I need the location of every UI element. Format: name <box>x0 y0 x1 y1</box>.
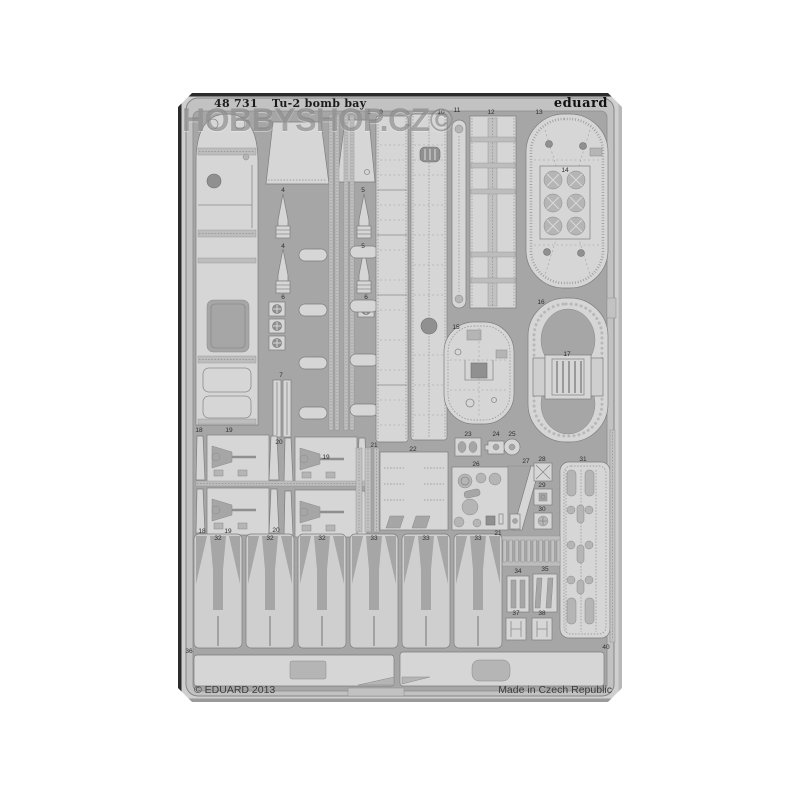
part-number-label: 32 <box>214 535 222 542</box>
part-number-label: 13 <box>535 109 543 116</box>
part-11-strip <box>452 120 466 308</box>
part-number-label: 40 <box>602 644 610 651</box>
part-number-label: 18 <box>198 528 206 535</box>
part-16-ring <box>528 298 608 442</box>
part-number-label: 35 <box>541 566 549 573</box>
part-number-label: 21 <box>370 442 378 449</box>
part-number-label: 6 <box>364 294 368 301</box>
part-bomb-bay-doors <box>376 114 447 442</box>
part-number-label: 11 <box>454 107 461 114</box>
part-number-label: 38 <box>538 610 546 617</box>
part-13-oval-panel <box>526 114 608 288</box>
part-number-label: 17 <box>563 351 571 358</box>
part-number-label: 32 <box>318 535 326 542</box>
part-number-label: 21 <box>494 530 502 537</box>
part-31-panel <box>560 462 610 638</box>
part-number-label: 7 <box>279 372 283 379</box>
parts-28-29-30 <box>534 463 552 529</box>
part-17-grille <box>533 355 603 399</box>
pe-fret-sheet: 1910111213144545667151617181920192122232… <box>178 93 622 702</box>
part-26-plate <box>452 467 508 530</box>
part-number-label: 23 <box>464 431 472 438</box>
part-number-label: 30 <box>538 506 546 513</box>
part-number-label: 19 <box>322 454 330 461</box>
product-photo: 1910111213144545667151617181920192122232… <box>178 93 622 702</box>
part-number-label: 12 <box>487 109 495 116</box>
part-bomb-bay-sidewall <box>196 114 258 425</box>
page: 1910111213144545667151617181920192122232… <box>0 0 800 800</box>
part-number-label: 27 <box>522 458 530 465</box>
part-number-label: 32 <box>266 535 274 542</box>
origin-text: Made in Czech Republic <box>498 684 612 696</box>
part-number-label: 16 <box>537 299 545 306</box>
part-number-label: 4 <box>281 243 285 250</box>
part-number-label: 37 <box>512 610 520 617</box>
part-number-label: 33 <box>474 535 482 542</box>
part-number-label: 34 <box>514 568 522 575</box>
part-number-label: 24 <box>492 431 500 438</box>
part-number-label: 19 <box>224 528 232 535</box>
eduard-logo: eduard <box>554 96 608 111</box>
part-number-label: 4 <box>281 187 285 194</box>
part-number-label: 28 <box>538 456 546 463</box>
part-number-label: 6 <box>281 294 285 301</box>
part-number-label: 31 <box>579 456 587 463</box>
part-number-label: 33 <box>370 535 378 542</box>
part-number-label: 22 <box>409 446 417 453</box>
part-number-label: 5 <box>361 243 365 250</box>
part-15-oval <box>444 322 514 424</box>
part-number-label: 20 <box>272 527 280 534</box>
part-number-label: 36 <box>185 648 193 655</box>
part-number-label: 15 <box>452 324 460 331</box>
part-number-label: 20 <box>275 439 283 446</box>
part-number-label: 26 <box>472 461 480 468</box>
hobbyshop-watermark: HOBBYSHOP.CZ© <box>182 102 453 139</box>
part-number-label: 25 <box>508 431 516 438</box>
part-number-label: 19 <box>225 427 233 434</box>
part-12-ladder <box>470 116 516 308</box>
part-number-label: 14 <box>561 167 569 174</box>
part-number-label: 18 <box>195 427 203 434</box>
part-number-label: 29 <box>538 482 546 489</box>
part-number-label: 33 <box>422 535 430 542</box>
part-number-label: 5 <box>361 187 365 194</box>
copyright-text: © EDUARD 2013 <box>194 684 275 696</box>
part-21-grid-vertical <box>356 448 379 532</box>
part-22-plate <box>380 452 448 530</box>
